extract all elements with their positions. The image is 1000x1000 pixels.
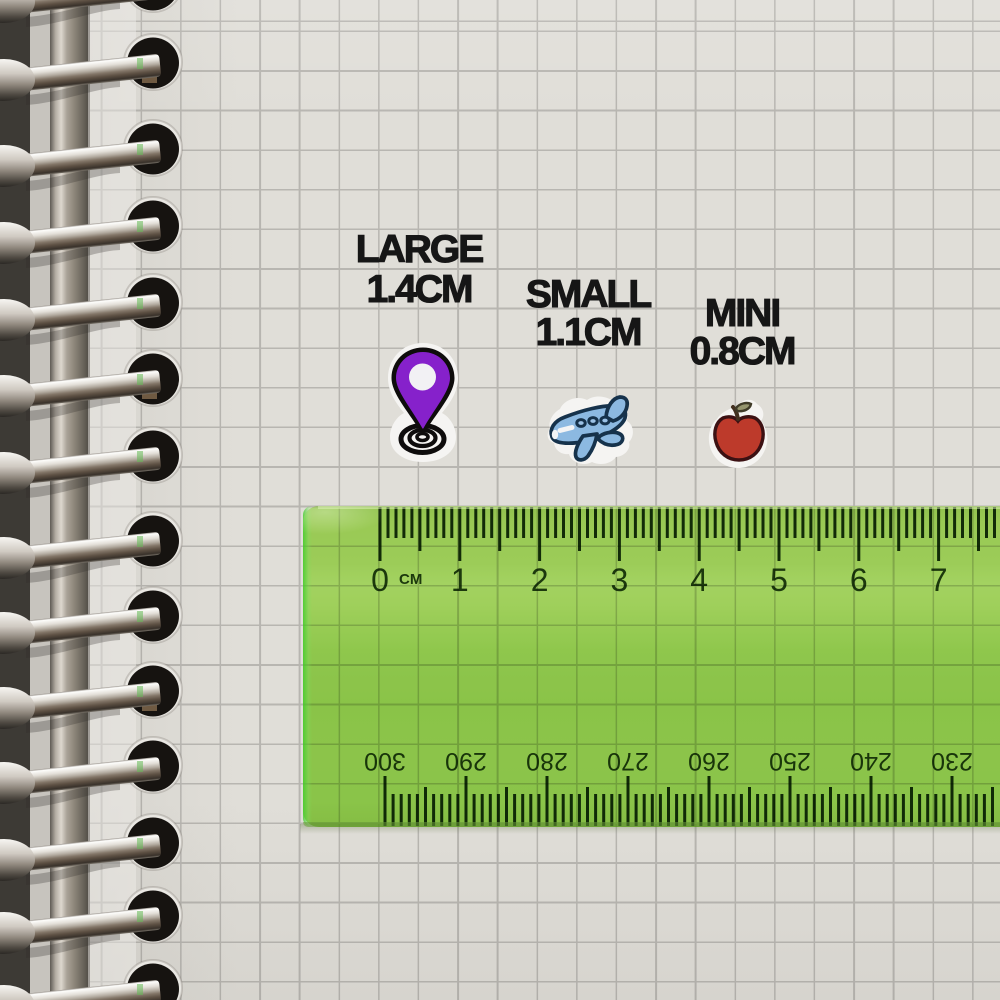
svg-text:260: 260 [688,747,730,775]
svg-text:230: 230 [931,747,973,775]
svg-text:250: 250 [769,747,811,775]
svg-text:2: 2 [531,562,549,598]
svg-text:280: 280 [526,747,568,775]
svg-text:1: 1 [451,562,469,598]
svg-text:CM: CM [399,571,422,588]
svg-text:6: 6 [850,562,868,598]
svg-text:290: 290 [445,747,487,775]
svg-text:4: 4 [690,562,708,598]
svg-text:240: 240 [850,747,892,775]
svg-text:3: 3 [611,562,629,598]
svg-text:5: 5 [770,562,788,598]
svg-text:300: 300 [364,747,406,775]
svg-text:7: 7 [930,562,948,598]
svg-text:0: 0 [371,562,389,598]
svg-text:270: 270 [607,747,649,775]
